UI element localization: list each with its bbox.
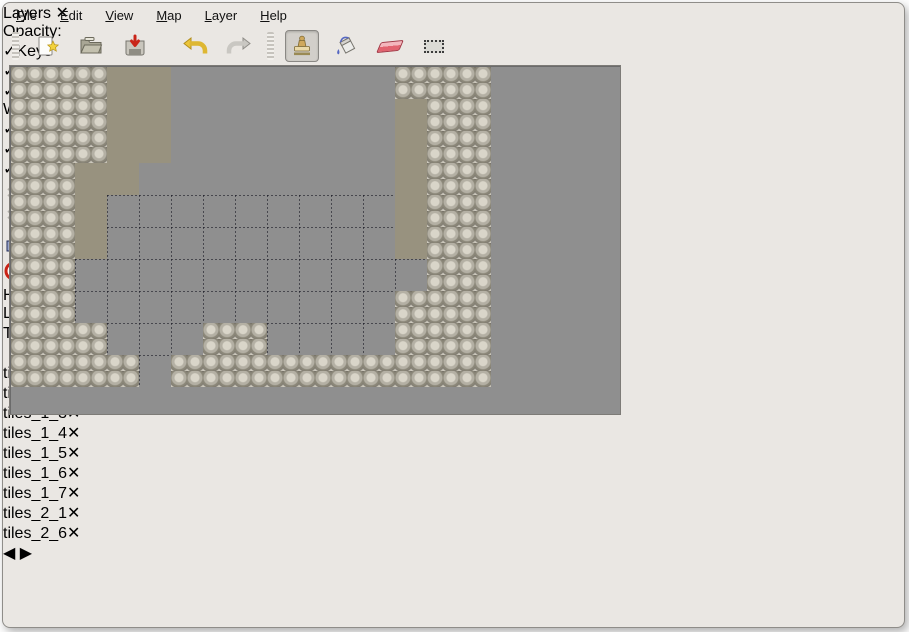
map-tile bbox=[459, 355, 491, 387]
map-tile bbox=[395, 355, 427, 387]
map-tile bbox=[11, 67, 43, 99]
map-tile bbox=[363, 99, 395, 131]
tileset-tab-label: tiles_1_4 bbox=[3, 425, 67, 442]
map-tile bbox=[139, 259, 171, 291]
map-tile bbox=[267, 67, 299, 99]
tileset-tile-tree-white[interactable] bbox=[3, 595, 35, 627]
map-tile bbox=[427, 99, 459, 131]
tileset-tab-tiles_1_7[interactable]: tiles_1_7✕ bbox=[3, 483, 904, 503]
menu-bar: FileEditViewMapLayerHelp bbox=[3, 3, 904, 27]
map-tile bbox=[43, 355, 75, 387]
tab-scroll-right-icon[interactable]: ▶ bbox=[20, 545, 32, 562]
map-tile bbox=[363, 67, 395, 99]
map-tile bbox=[267, 355, 299, 387]
map-tile bbox=[11, 259, 43, 291]
map-tile bbox=[203, 67, 235, 99]
tileset-tab-tiles_2_6[interactable]: tiles_2_6✕ bbox=[3, 523, 904, 543]
map-tile bbox=[139, 163, 171, 195]
redo-icon bbox=[225, 34, 253, 58]
map-tile bbox=[75, 131, 107, 163]
map-tile bbox=[459, 67, 491, 99]
map-tile bbox=[203, 131, 235, 163]
tileset-tab-label: tiles_1_5 bbox=[3, 445, 67, 462]
tileset-view[interactable]: ▲ ▼ bbox=[3, 563, 904, 628]
map-tile bbox=[11, 355, 43, 387]
map-tile bbox=[43, 323, 75, 355]
fill-icon bbox=[333, 33, 359, 59]
map-tile bbox=[459, 227, 491, 259]
map-tile bbox=[11, 131, 43, 163]
map-tile bbox=[171, 195, 203, 227]
map-tile bbox=[203, 163, 235, 195]
map-tile bbox=[235, 259, 267, 291]
map-tile bbox=[203, 259, 235, 291]
new-icon bbox=[34, 33, 60, 59]
open-button[interactable] bbox=[74, 30, 108, 62]
menu-file[interactable]: File bbox=[16, 8, 37, 23]
map-tile bbox=[171, 163, 203, 195]
tab-close-icon[interactable]: ✕ bbox=[67, 445, 80, 462]
map-tile bbox=[43, 67, 75, 99]
map-tile bbox=[427, 259, 459, 291]
map-tile bbox=[267, 99, 299, 131]
map-tile bbox=[427, 67, 459, 99]
tileset-tab-label: tiles_1_6 bbox=[3, 465, 67, 482]
menu-help[interactable]: Help bbox=[260, 8, 287, 23]
map-tile bbox=[331, 291, 363, 323]
map-tile bbox=[235, 99, 267, 131]
map-tile bbox=[267, 259, 299, 291]
map-tile bbox=[363, 163, 395, 195]
map-tile bbox=[203, 227, 235, 259]
map-tile bbox=[203, 291, 235, 323]
map-tile bbox=[331, 355, 363, 387]
map-tile bbox=[107, 163, 139, 195]
save-button[interactable] bbox=[118, 30, 152, 62]
map-tile bbox=[43, 259, 75, 291]
tileset-tile-flower-red[interactable] bbox=[3, 627, 35, 628]
map-tile bbox=[139, 195, 171, 227]
map-tile bbox=[107, 195, 139, 227]
map-tile bbox=[235, 323, 267, 355]
map-tile bbox=[331, 131, 363, 163]
tileset-tab-tiles_1_6[interactable]: tiles_1_6✕ bbox=[3, 463, 904, 483]
tab-close-icon[interactable]: ✕ bbox=[67, 465, 80, 482]
map-tile bbox=[395, 131, 427, 163]
map-tile bbox=[75, 67, 107, 99]
map-tile bbox=[11, 99, 43, 131]
menu-layer[interactable]: Layer bbox=[205, 8, 238, 23]
tab-close-icon[interactable]: ✕ bbox=[67, 425, 80, 442]
undo-icon bbox=[181, 34, 209, 58]
map-tile bbox=[171, 259, 203, 291]
app-window: FileEditViewMapLayerHelp Layers ✕ Opacit… bbox=[2, 2, 905, 628]
map-tile bbox=[11, 195, 43, 227]
tileset-tab-label: tiles_2_1 bbox=[3, 505, 67, 522]
map-tile bbox=[459, 99, 491, 131]
new-button[interactable] bbox=[30, 30, 64, 62]
map-tile bbox=[331, 195, 363, 227]
eraser-button[interactable] bbox=[373, 30, 407, 62]
map-tile bbox=[75, 195, 107, 227]
map-tile bbox=[331, 67, 363, 99]
map-tile bbox=[331, 227, 363, 259]
map-tile bbox=[107, 131, 139, 163]
map-tile bbox=[395, 99, 427, 131]
map-tile bbox=[171, 67, 203, 99]
toolbar-grip[interactable] bbox=[267, 32, 274, 60]
undo-button[interactable] bbox=[178, 30, 212, 62]
menu-view[interactable]: View bbox=[105, 8, 133, 23]
map-tile bbox=[459, 323, 491, 355]
map-tile bbox=[427, 227, 459, 259]
map-tile bbox=[11, 163, 43, 195]
map-tile bbox=[139, 291, 171, 323]
map-tile bbox=[235, 227, 267, 259]
tileset-tab-tiles_1_5[interactable]: tiles_1_5✕ bbox=[3, 443, 904, 463]
map-tile bbox=[171, 131, 203, 163]
map-viewport[interactable] bbox=[9, 65, 621, 415]
map-tile bbox=[299, 163, 331, 195]
map-tile bbox=[203, 99, 235, 131]
tab-close-icon[interactable]: ✕ bbox=[67, 485, 80, 502]
map-tile bbox=[75, 99, 107, 131]
tab-close-icon[interactable]: ✕ bbox=[67, 505, 80, 522]
map-tile bbox=[299, 227, 331, 259]
map-tile bbox=[363, 323, 395, 355]
map-tile bbox=[75, 227, 107, 259]
map-tile bbox=[75, 355, 107, 387]
map-tile bbox=[299, 291, 331, 323]
map-tile bbox=[331, 323, 363, 355]
map-tile bbox=[459, 259, 491, 291]
tab-scroll-left-icon[interactable]: ◀ bbox=[3, 545, 15, 562]
map-tile bbox=[459, 163, 491, 195]
map-tile bbox=[107, 291, 139, 323]
menu-edit[interactable]: Edit bbox=[60, 8, 82, 23]
map-tile bbox=[75, 323, 107, 355]
map-tile bbox=[107, 67, 139, 99]
map-tile bbox=[395, 195, 427, 227]
map-tile bbox=[427, 355, 459, 387]
map-tile bbox=[203, 323, 235, 355]
map-tile bbox=[171, 355, 203, 387]
map-tile bbox=[171, 99, 203, 131]
map-tile bbox=[363, 131, 395, 163]
stamp-icon bbox=[290, 34, 314, 58]
map-tile bbox=[267, 163, 299, 195]
open-icon bbox=[78, 33, 104, 59]
map-tile bbox=[43, 195, 75, 227]
map-tile bbox=[299, 99, 331, 131]
map-tile bbox=[267, 227, 299, 259]
map-tile bbox=[171, 291, 203, 323]
map-tile bbox=[427, 323, 459, 355]
map-tile bbox=[139, 355, 171, 387]
map-tile bbox=[267, 131, 299, 163]
map-tile bbox=[235, 131, 267, 163]
map-tile bbox=[107, 259, 139, 291]
map-tile bbox=[11, 227, 43, 259]
map-tile bbox=[299, 259, 331, 291]
tileset-tab-label: tiles_1_7 bbox=[3, 485, 67, 502]
map-tile bbox=[235, 291, 267, 323]
map-tile bbox=[299, 131, 331, 163]
map-tile bbox=[43, 99, 75, 131]
map-tile bbox=[267, 291, 299, 323]
map-tile bbox=[363, 259, 395, 291]
map-tile bbox=[235, 163, 267, 195]
map-tile bbox=[139, 67, 171, 99]
map-tile bbox=[331, 163, 363, 195]
map-tile bbox=[427, 163, 459, 195]
tileset-tab-tiles_1_4[interactable]: tiles_1_4✕ bbox=[3, 423, 904, 443]
map-tile bbox=[363, 355, 395, 387]
tileset-tab-label: tiles_2_6 bbox=[3, 525, 67, 542]
map-tile bbox=[331, 99, 363, 131]
map-tile bbox=[299, 195, 331, 227]
save-icon bbox=[122, 33, 148, 59]
map-tile bbox=[139, 227, 171, 259]
map-tile bbox=[235, 355, 267, 387]
map-tile bbox=[139, 131, 171, 163]
select-button[interactable] bbox=[417, 30, 451, 62]
map-tile bbox=[235, 195, 267, 227]
map-tile bbox=[331, 259, 363, 291]
map-tile bbox=[235, 67, 267, 99]
map-tile bbox=[299, 67, 331, 99]
toolbar-grip[interactable] bbox=[12, 32, 19, 60]
map-tile bbox=[427, 195, 459, 227]
map-canvas[interactable] bbox=[11, 67, 491, 387]
map-tile bbox=[459, 291, 491, 323]
tileset-tile-tree-bare[interactable] bbox=[3, 563, 35, 595]
map-tile bbox=[427, 131, 459, 163]
map-tile bbox=[459, 195, 491, 227]
redo-button[interactable] bbox=[222, 30, 256, 62]
select-icon bbox=[424, 40, 444, 53]
map-tile bbox=[363, 195, 395, 227]
map-tile bbox=[395, 323, 427, 355]
stamp-button[interactable] bbox=[285, 30, 319, 62]
map-tile bbox=[363, 227, 395, 259]
map-tile bbox=[395, 291, 427, 323]
map-tile bbox=[43, 163, 75, 195]
tileset-tab-tiles_2_1[interactable]: tiles_2_1✕ bbox=[3, 503, 904, 523]
menu-map[interactable]: Map bbox=[156, 8, 181, 23]
map-tile bbox=[139, 99, 171, 131]
map-tile bbox=[43, 131, 75, 163]
map-tile bbox=[43, 227, 75, 259]
map-tile bbox=[11, 323, 43, 355]
map-tile bbox=[11, 291, 43, 323]
map-tile bbox=[139, 323, 171, 355]
tab-close-icon[interactable]: ✕ bbox=[67, 525, 80, 542]
fill-button[interactable] bbox=[329, 30, 363, 62]
tileset-tiles bbox=[3, 563, 904, 628]
map-tile bbox=[363, 291, 395, 323]
map-tile bbox=[203, 355, 235, 387]
map-tile bbox=[299, 323, 331, 355]
map-tile bbox=[171, 227, 203, 259]
map-tile bbox=[267, 323, 299, 355]
map-tile bbox=[75, 291, 107, 323]
toolbar bbox=[3, 27, 904, 65]
map-tile bbox=[395, 67, 427, 99]
map-tile bbox=[75, 163, 107, 195]
map-tile bbox=[107, 355, 139, 387]
map-tile bbox=[299, 355, 331, 387]
map-tile bbox=[107, 323, 139, 355]
map-tile bbox=[459, 131, 491, 163]
map-tile bbox=[395, 259, 427, 291]
map-tile bbox=[267, 195, 299, 227]
map-tile bbox=[107, 227, 139, 259]
map-tile bbox=[107, 99, 139, 131]
map-tile bbox=[395, 227, 427, 259]
map-tile bbox=[171, 323, 203, 355]
map-tile bbox=[395, 163, 427, 195]
map-tile bbox=[43, 291, 75, 323]
map-tile bbox=[427, 291, 459, 323]
map-tile bbox=[203, 195, 235, 227]
map-tile bbox=[75, 259, 107, 291]
eraser-icon bbox=[379, 41, 401, 52]
